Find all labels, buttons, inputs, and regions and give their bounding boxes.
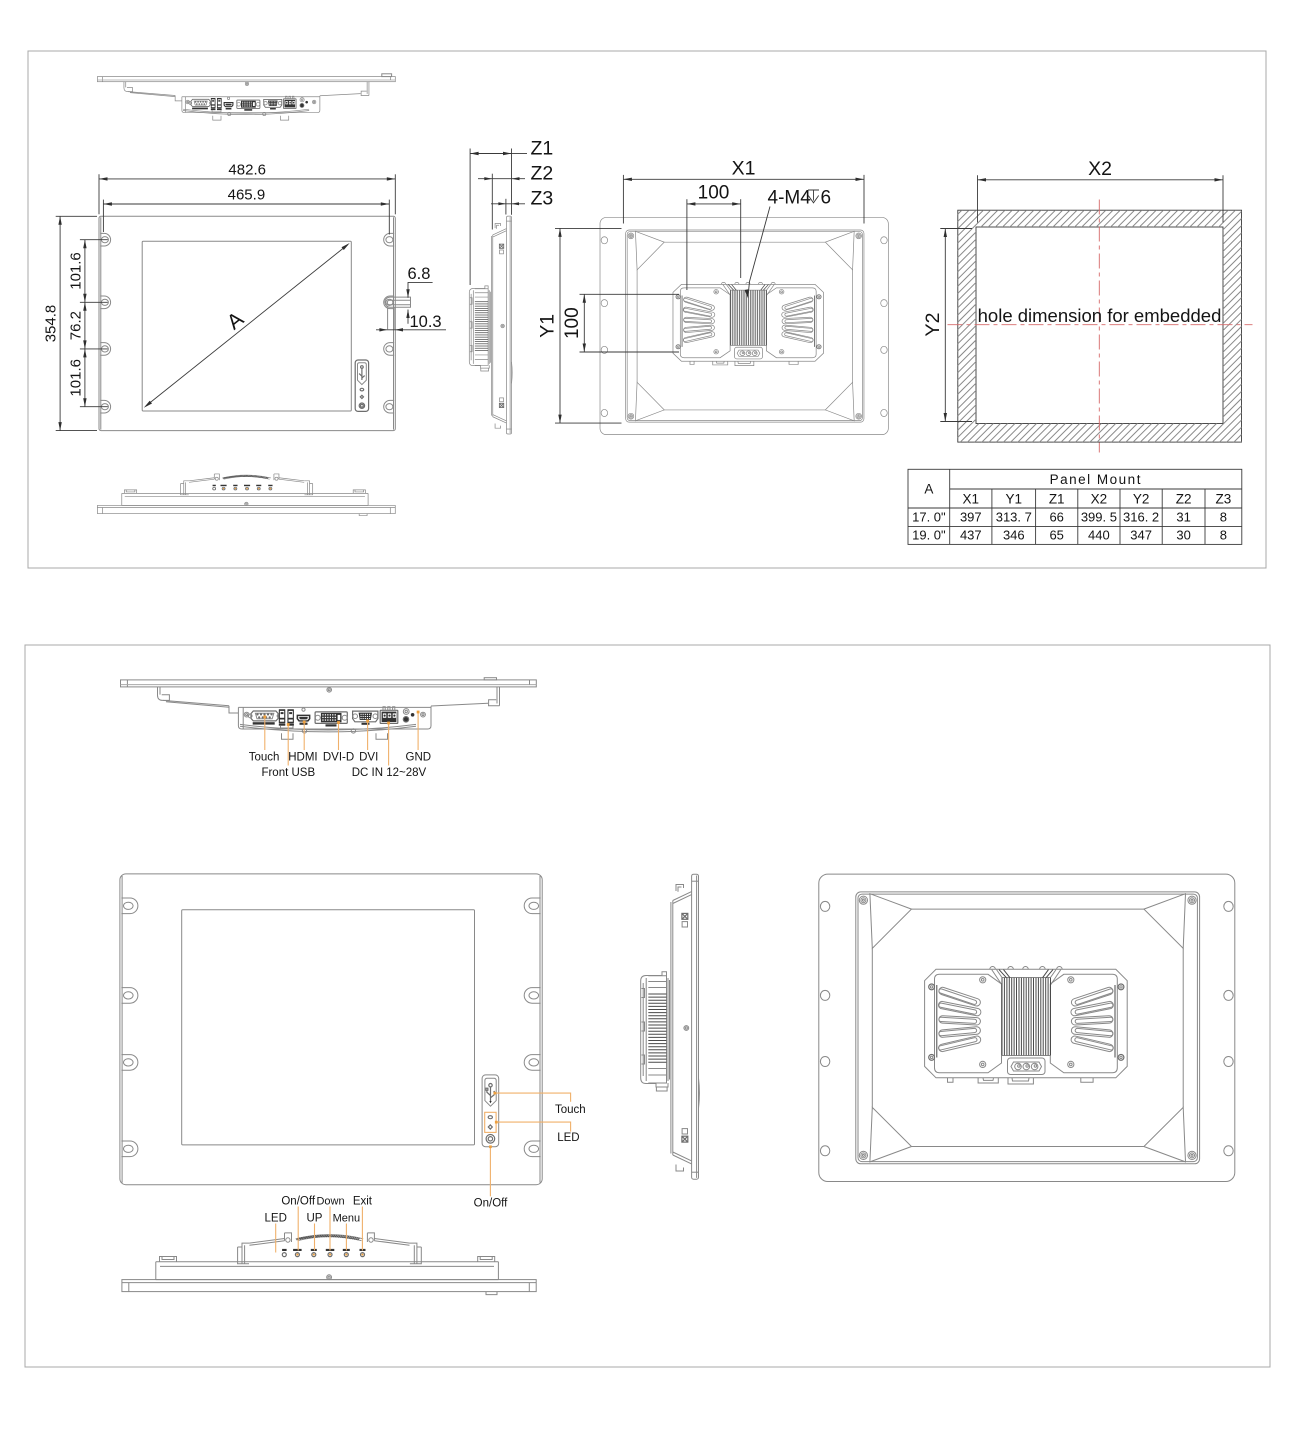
svg-text:437: 437: [960, 528, 982, 543]
svg-text:Exit: Exit: [353, 1195, 373, 1207]
svg-text:6.8: 6.8: [408, 265, 431, 283]
svg-text:8: 8: [1220, 528, 1227, 543]
svg-text:346: 346: [1003, 528, 1025, 543]
svg-text:347: 347: [1130, 528, 1152, 543]
svg-text:DC IN 12~28V: DC IN 12~28V: [352, 767, 427, 779]
svg-text:17. 0": 17. 0": [912, 510, 946, 525]
svg-text:hole dimension for embedded: hole dimension for embedded: [978, 305, 1222, 326]
svg-text:Front USB: Front USB: [261, 767, 315, 779]
svg-text:Y2: Y2: [1133, 491, 1150, 506]
svg-text:6: 6: [821, 188, 832, 209]
svg-text:Y2: Y2: [922, 313, 944, 337]
svg-text:X2: X2: [1091, 491, 1108, 506]
svg-text:Touch: Touch: [249, 751, 280, 763]
svg-text:HDMI: HDMI: [288, 751, 317, 763]
svg-text:10.3: 10.3: [410, 313, 442, 331]
svg-text:76.2: 76.2: [67, 311, 84, 340]
svg-text:Z2: Z2: [1176, 491, 1192, 506]
svg-text:8: 8: [1220, 510, 1227, 525]
svg-text:X2: X2: [1088, 158, 1112, 180]
svg-text:Menu: Menu: [333, 1213, 361, 1225]
svg-text:Z1: Z1: [531, 138, 554, 160]
svg-text:LED: LED: [265, 1213, 287, 1225]
svg-text:440: 440: [1088, 528, 1110, 543]
svg-text:482.6: 482.6: [228, 161, 266, 178]
svg-text:316. 2: 316. 2: [1123, 510, 1159, 525]
svg-text:465.9: 465.9: [228, 187, 266, 204]
svg-text:X1: X1: [963, 491, 980, 506]
svg-text:101.6: 101.6: [67, 359, 84, 397]
svg-text:101.6: 101.6: [67, 252, 84, 290]
svg-text:Panel Mount: Panel Mount: [1050, 472, 1142, 487]
svg-text:Y1: Y1: [537, 314, 559, 338]
svg-text:On/Off: On/Off: [281, 1195, 315, 1207]
svg-text:X1: X1: [732, 158, 756, 180]
svg-text:Y1: Y1: [1006, 491, 1023, 506]
svg-text:65: 65: [1049, 528, 1063, 543]
svg-text:397: 397: [960, 510, 982, 525]
svg-text:31: 31: [1176, 510, 1190, 525]
svg-text:LED: LED: [557, 1132, 579, 1144]
svg-text:Touch: Touch: [555, 1104, 586, 1116]
svg-text:399. 5: 399. 5: [1081, 510, 1117, 525]
svg-text:Z3: Z3: [1216, 491, 1232, 506]
svg-text:GND: GND: [406, 751, 432, 763]
svg-text:DVI: DVI: [359, 751, 378, 763]
svg-text:100: 100: [562, 307, 583, 339]
svg-text:66: 66: [1049, 510, 1063, 525]
svg-text:Z2: Z2: [531, 163, 554, 185]
svg-text:A: A: [924, 482, 933, 497]
svg-text:100: 100: [698, 183, 730, 204]
svg-text:DVI-D: DVI-D: [323, 751, 354, 763]
svg-text:Z3: Z3: [531, 188, 554, 210]
svg-text:UP: UP: [307, 1213, 323, 1225]
svg-text:On/Off: On/Off: [474, 1198, 508, 1210]
svg-text:354.8: 354.8: [43, 305, 60, 343]
svg-text:4-M4: 4-M4: [768, 188, 812, 209]
svg-text:19. 0": 19. 0": [912, 528, 946, 543]
svg-text:30: 30: [1176, 528, 1190, 543]
svg-text:313. 7: 313. 7: [996, 510, 1032, 525]
svg-text:Z1: Z1: [1049, 491, 1065, 506]
svg-text:Down: Down: [316, 1195, 344, 1207]
